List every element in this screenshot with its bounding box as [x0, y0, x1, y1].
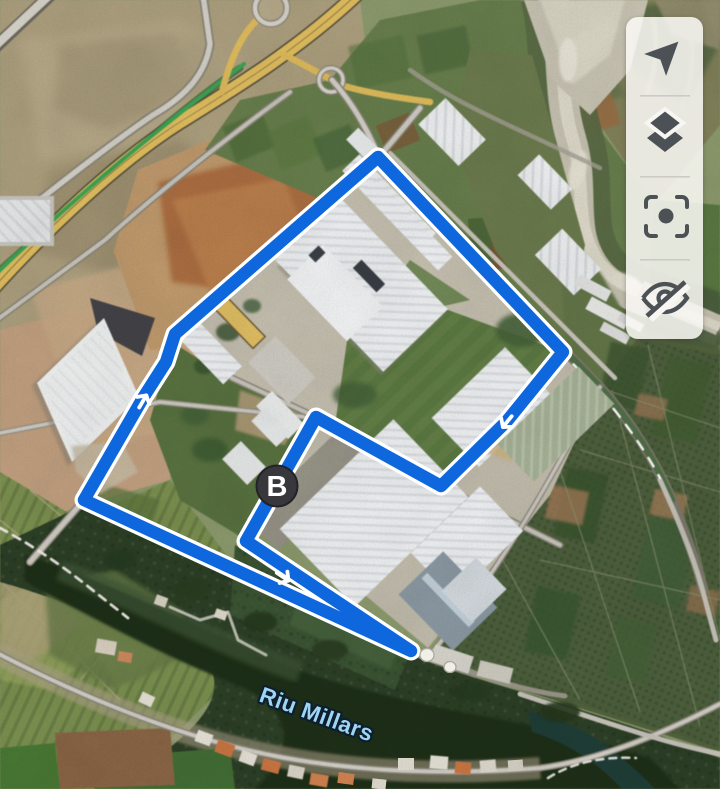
svg-text:B: B — [267, 471, 288, 503]
